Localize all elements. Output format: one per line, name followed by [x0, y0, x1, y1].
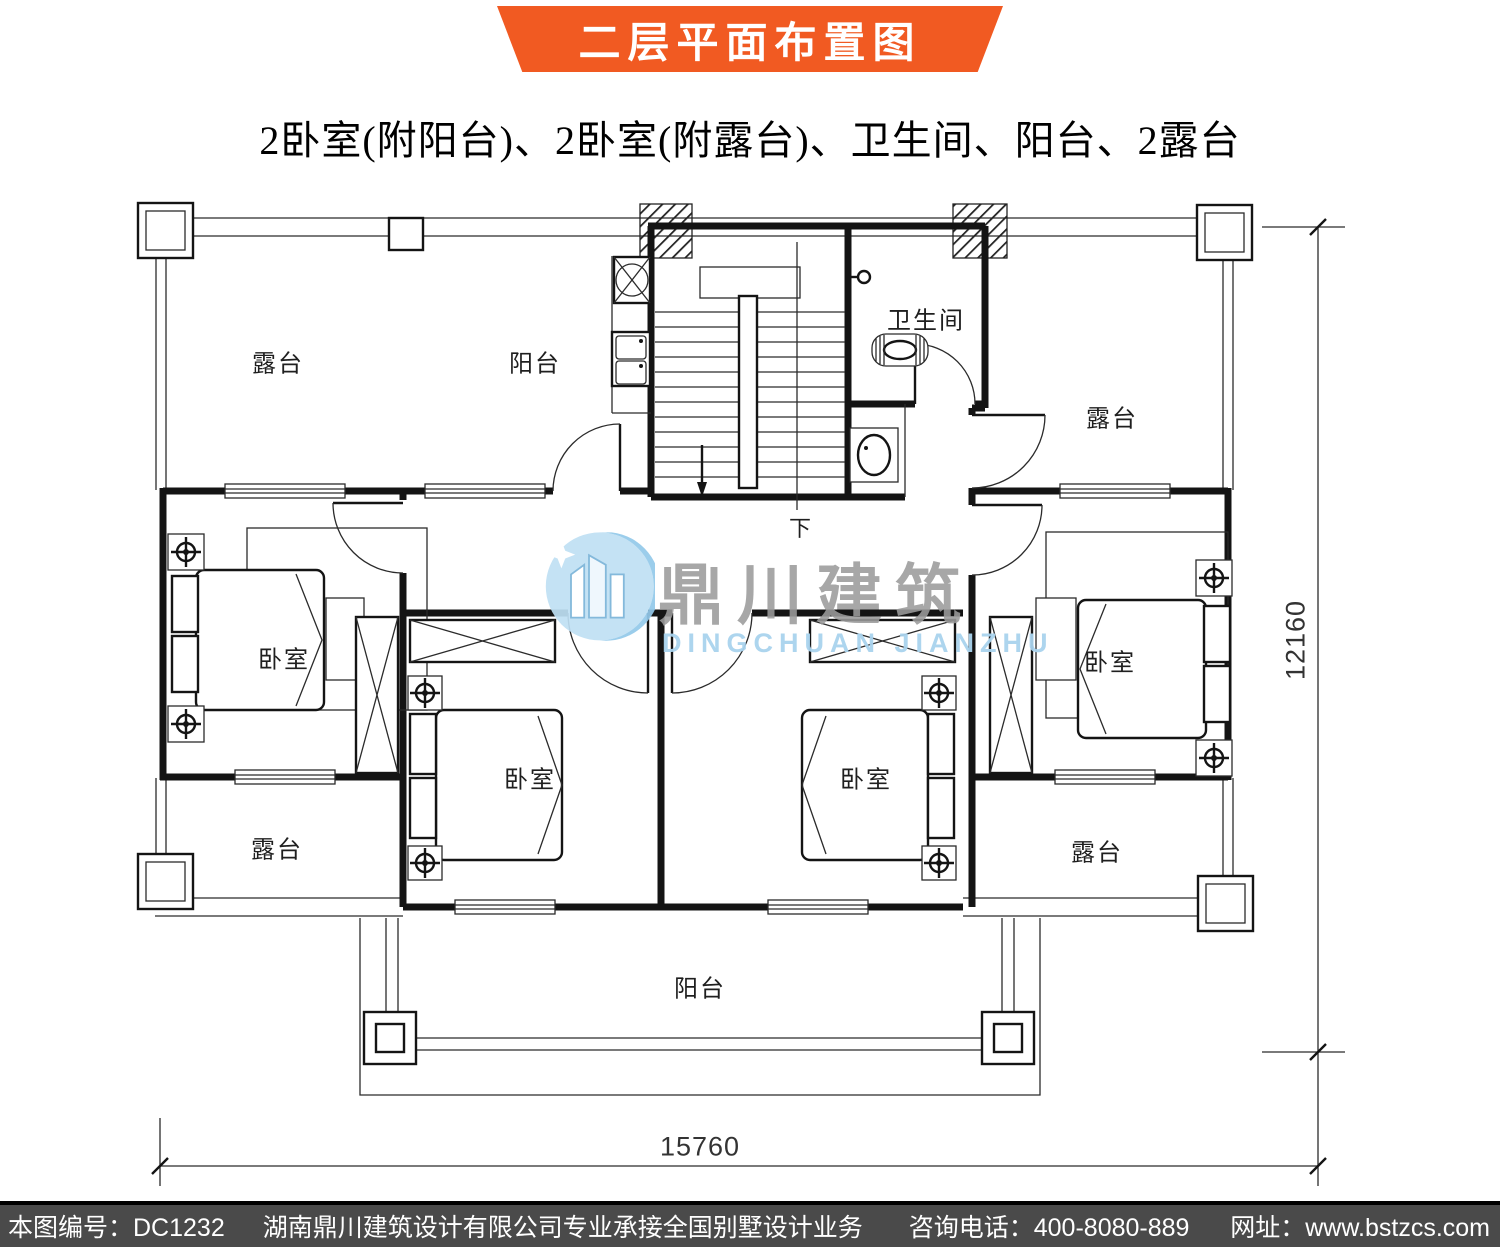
walls — [160, 226, 1228, 907]
label-bathroom: 卫生间 — [887, 301, 965, 336]
label-bedroom-right: 卧室 — [1084, 643, 1136, 678]
drawing-number: 本图编号：DC1232 — [8, 1208, 225, 1244]
label-bedroom-center-left: 卧室 — [504, 760, 556, 795]
label-terrace-bottom-right: 露台 — [1071, 833, 1123, 868]
label-bedroom-center-right: 卧室 — [840, 760, 892, 795]
footer-bar: 本图编号：DC1232 湖南鼎川建筑设计有限公司专业承接全国别墅设计业务 咨询电… — [0, 1201, 1500, 1247]
staircase — [655, 242, 845, 510]
website-line: 网址：www.bstzcs.com — [1230, 1208, 1490, 1244]
label-stairs-down: 下 — [789, 511, 813, 543]
page: 二层平面布置图 2卧室(附阳台)、2卧室(附露台)、卫生间、阳台、2露台 — [0, 0, 1500, 1247]
floor-plan-drawing — [0, 0, 1500, 1247]
bottom-balcony-outline — [360, 918, 1040, 1095]
label-balcony-top: 阳台 — [509, 344, 561, 379]
dimension-depth: 12160 — [1281, 600, 1312, 680]
company-line: 湖南鼎川建筑设计有限公司专业承接全国别墅设计业务 — [263, 1208, 863, 1244]
furniture — [168, 528, 1232, 880]
label-balcony-bottom: 阳台 — [674, 969, 726, 1004]
hatched-walls — [640, 204, 1007, 258]
label-bedroom-left: 卧室 — [258, 640, 310, 675]
label-terrace-bottom-left: 露台 — [251, 830, 303, 865]
dimension-width: 15760 — [660, 1132, 740, 1163]
label-terrace-top-left: 露台 — [252, 344, 304, 379]
label-terrace-top-right: 露台 — [1086, 399, 1138, 434]
phone-line: 咨询电话：400-8080-889 — [909, 1208, 1190, 1244]
terrace-railings — [155, 218, 1234, 916]
